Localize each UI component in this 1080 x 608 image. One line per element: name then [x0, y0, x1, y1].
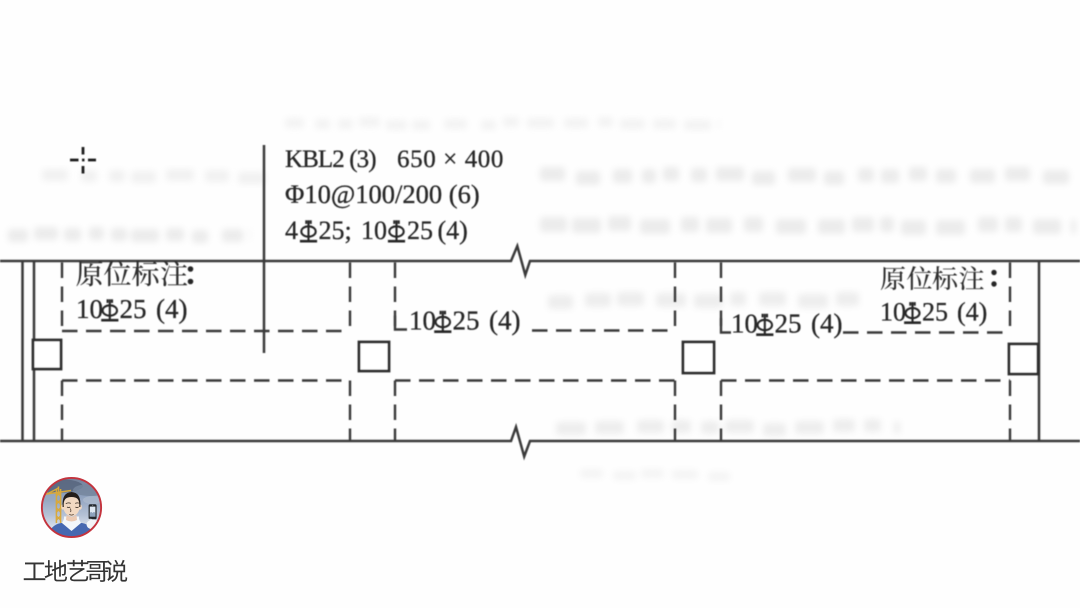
- svg-text:(4): (4): [438, 216, 468, 245]
- svg-text:10: 10: [409, 306, 436, 336]
- svg-text:650 × 400: 650 × 400: [397, 146, 504, 173]
- svg-text:(4): (4): [811, 309, 842, 339]
- svg-text:Φ10@100/200 (6): Φ10@100/200 (6): [285, 179, 480, 209]
- svg-text:(4): (4): [957, 298, 987, 327]
- svg-text:25: 25: [922, 298, 948, 327]
- svg-text:25;: 25;: [319, 216, 352, 245]
- svg-text:10: 10: [76, 294, 103, 324]
- svg-text:25: 25: [120, 294, 147, 324]
- svg-text:(4): (4): [489, 306, 520, 336]
- svg-text:25: 25: [775, 309, 802, 339]
- svg-text:25: 25: [407, 216, 433, 245]
- svg-text:KBL2 (3): KBL2 (3): [285, 146, 376, 173]
- svg-text:10: 10: [880, 298, 906, 327]
- svg-text:25: 25: [453, 306, 480, 336]
- svg-text:(4): (4): [156, 294, 187, 324]
- svg-text:10: 10: [361, 216, 387, 245]
- svg-text:4: 4: [285, 216, 298, 245]
- svg-text:10: 10: [731, 309, 758, 339]
